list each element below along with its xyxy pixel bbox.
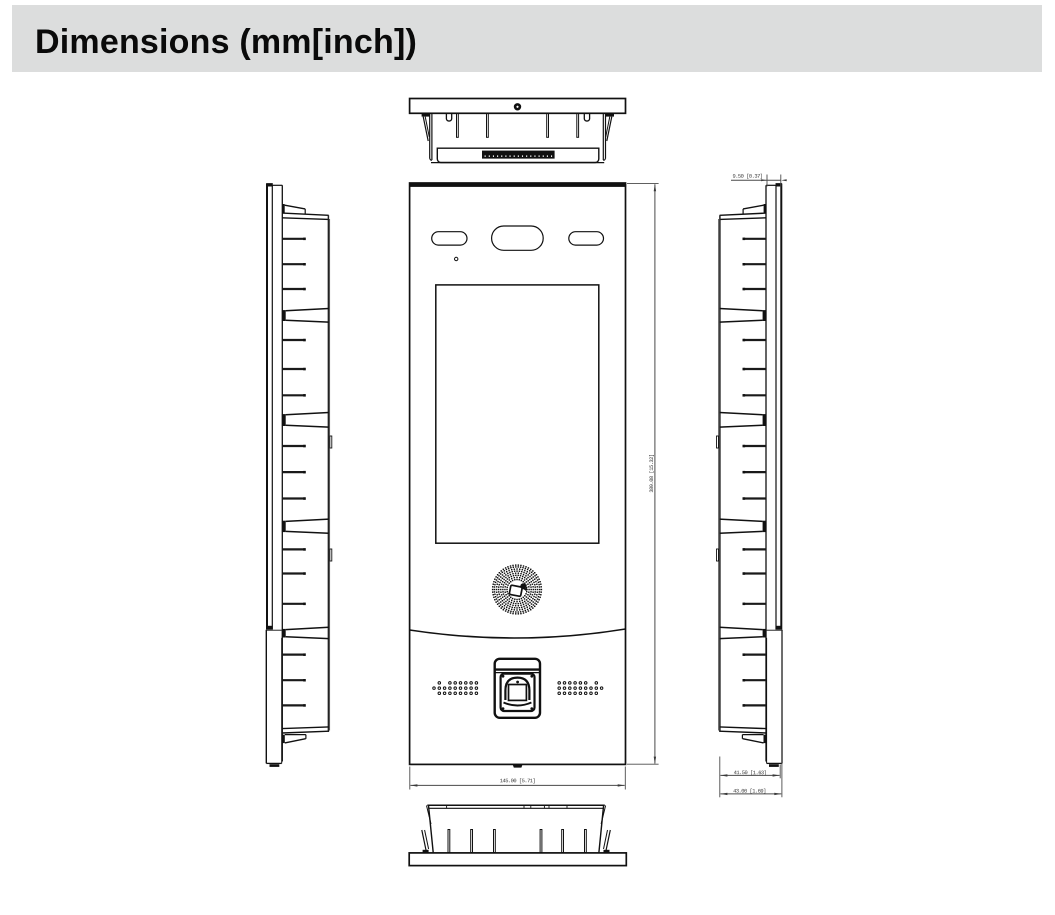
svg-text:145.00 [5.71]: 145.00 [5.71]: [500, 778, 536, 784]
svg-text:389.08 [15.32]: 389.08 [15.32]: [649, 454, 655, 493]
svg-text:9.50 [0.37]: 9.50 [0.37]: [732, 174, 762, 180]
svg-text:43.00 [1.69]: 43.00 [1.69]: [733, 788, 766, 794]
svg-text:41.50 [1.63]: 41.50 [1.63]: [734, 770, 767, 776]
